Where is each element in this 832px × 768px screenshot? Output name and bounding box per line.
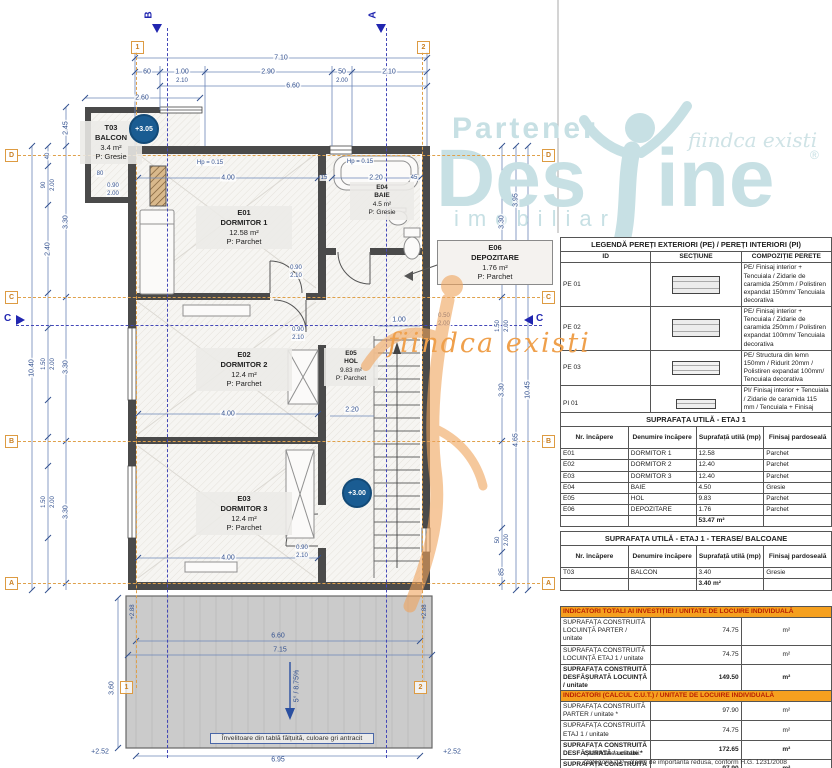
cell-nr: E04 — [561, 482, 629, 493]
grid-marker-A-right: A — [542, 577, 555, 590]
area-table-balcoane: SUPRAFAȚA UTILĂ - ETAJ 1 - TERASE/ BALCO… — [560, 531, 832, 591]
table-row: SUPRAFAȚA CONSTRUITĂ DESFĂȘURATĂ LOCUINȚ… — [561, 664, 832, 691]
dim-label: 2.40 — [45, 241, 52, 257]
table-row: E02 DORMITOR 2 12.40 Parchet — [561, 460, 832, 471]
section-arrow-C-left-icon — [16, 315, 25, 325]
dim-label: 2.10 — [291, 335, 305, 341]
dim-label: 10.40 — [29, 358, 36, 378]
table-row: PE 02 PE/ Finisaj interior + Tencuiala /… — [561, 307, 832, 351]
grid-marker-1-top: 1 — [131, 41, 144, 54]
dim-label: 7.15 — [272, 647, 288, 654]
table-row: E05 HOL 9.83 Parchet — [561, 493, 832, 504]
dim-label: +2.88 — [130, 603, 136, 620]
dim-label: 85 — [499, 567, 506, 577]
indicator-value: 74.75 — [651, 618, 741, 645]
indicator-unit: m² — [741, 645, 831, 664]
wall-section-glyph — [651, 263, 741, 307]
wall-section-pe03-icon — [672, 361, 720, 375]
col-header: Nr. încăpere — [561, 546, 629, 568]
section-arrow-A-icon — [376, 24, 386, 33]
dim-label: 2.10 — [289, 273, 303, 279]
dim-label: 3.30 — [499, 214, 506, 230]
wall-section-pe01-icon — [672, 276, 720, 294]
empty-cell — [561, 516, 629, 527]
dim-label: +2.52 — [442, 749, 462, 756]
grid-marker-2-roof: 2 — [414, 681, 427, 694]
col-header: Denumire încăpere — [628, 546, 696, 568]
col-header: Nr. încăpere — [561, 427, 629, 449]
dim-label: +2.88 — [422, 603, 428, 620]
dim-label: 45 — [410, 175, 419, 181]
dim-label: 15 — [320, 175, 329, 181]
dim-label: 1.00 — [391, 317, 407, 324]
table-title: SUPRAFAȚA UTILĂ - ETAJ 1 - TERASE/ BALCO… — [561, 532, 832, 546]
room-area: 12.58 m² — [198, 228, 290, 238]
legend-title: LEGENDĂ PEREȚI EXTERIORI (PE) / PEREȚI I… — [561, 238, 832, 252]
indicator-value: 74.75 — [651, 721, 741, 740]
grid-marker-A-left: A — [5, 577, 18, 590]
dim-label: +2.52 — [90, 749, 110, 756]
room-id: E05 — [326, 350, 376, 358]
table-row: SUPRAFAȚA CONSTRUITĂ LOCUINȚĂ ETAJ 1 / u… — [561, 645, 832, 664]
table-row: E06 DEPOZITARE 1.76 Parchet — [561, 504, 832, 515]
watermark-script: fiindca existi — [388, 328, 591, 359]
dim-label: 90 — [41, 181, 47, 190]
table-total-row: 3.40 m² — [561, 579, 832, 590]
grid-line-2 — [422, 52, 423, 688]
indicators-title: INDICATORI (CALCUL C.U.T.) / UNITATE DE … — [561, 691, 832, 702]
dim-label: 3.60 — [109, 680, 116, 696]
dim-label: 2.90 — [260, 69, 276, 76]
room-label-e04: E04 BAIE 4.5 m² P: Gresie — [350, 182, 414, 220]
room-name: BAIE — [352, 192, 412, 200]
dim-label: 1.50 — [41, 357, 47, 371]
wall-section-glyph — [651, 307, 741, 351]
grid-line-A — [18, 583, 545, 584]
dim-label: 80 — [96, 171, 105, 177]
total-area: 53.47 m² — [696, 516, 764, 527]
floor-plan-sheet: Partener Des ine fiindca existi ® imobil… — [0, 0, 832, 768]
cell-finish: Parchet — [764, 460, 832, 471]
indicator-value: 74.75 — [651, 645, 741, 664]
logo-tagline: fiindca existi — [688, 128, 817, 152]
dim-label: 2.20 — [368, 175, 384, 182]
cell-finish: Gresie — [764, 568, 832, 579]
room-area: 4.5 m² — [352, 201, 412, 209]
empty-cell — [628, 516, 696, 527]
cell-nr: T03 — [561, 568, 629, 579]
legend-id: PE 01 — [561, 263, 651, 307]
room-finish: P: Parchet — [198, 237, 290, 247]
cell-finish: Parchet — [764, 471, 832, 482]
room-finish: P: Gresie — [82, 152, 140, 162]
cell-name: DORMITOR 2 — [628, 460, 696, 471]
classification-note: Clasificarea cladirii: Categoria "D" - c… — [584, 750, 824, 768]
room-name: DORMITOR 2 — [198, 360, 290, 370]
room-area: 1.76 m² — [440, 263, 550, 273]
room-name: DORMITOR 1 — [198, 218, 290, 228]
dim-label: 4.00 — [220, 555, 236, 562]
note-line: Clasificarea cladirii: — [584, 750, 824, 759]
room-label-e05: E05 HOL 9.83 m² P: Parchet — [324, 348, 378, 386]
room-name: HOL — [326, 358, 376, 366]
section-marker-C-left: C — [4, 314, 11, 324]
cell-finish: Parchet — [764, 493, 832, 504]
cell-finish: Gresie — [764, 482, 832, 493]
dim-label: 3.30 — [63, 504, 70, 520]
dim-label: 2.60 — [134, 95, 150, 102]
level-badge-floor: +3.00 — [342, 478, 372, 508]
cell-area: 12.40 — [696, 460, 764, 471]
logo-imobiliare: imobiliare — [454, 206, 638, 232]
grid-line-B — [18, 441, 545, 442]
dim-label: 1.50 — [41, 495, 47, 509]
room-label-e06: E06 DEPOZITARE 1.76 m² P: Parchet — [437, 240, 553, 285]
dim-label: 0.90 — [295, 545, 309, 551]
dim-label: 60 — [142, 69, 152, 76]
empty-cell — [764, 579, 832, 590]
section-line-A — [386, 28, 387, 758]
col-header: Finisaj pardoseală — [764, 546, 832, 568]
cell-finish: Parchet — [764, 449, 832, 460]
cell-area: 12.40 — [696, 471, 764, 482]
dim-label: 2.10 — [175, 78, 189, 84]
cell-nr: E02 — [561, 460, 629, 471]
dim-label: 1.00 — [174, 69, 190, 76]
dim-label: 4.65 — [513, 432, 520, 448]
cell-area: 4.50 — [696, 482, 764, 493]
room-area: 3.4 m² — [82, 143, 140, 153]
dim-label: 2.00 — [50, 178, 56, 192]
indicator-unit: m² — [741, 618, 831, 645]
legend-desc: PE/ Finisaj interior + Tencuiala / Zidar… — [741, 263, 831, 307]
dim-label: 10.45 — [525, 380, 532, 400]
roof-note: Învelitoare din tablă fălțuită, culoare … — [210, 733, 374, 744]
grid-marker-B-left: B — [5, 435, 18, 448]
dim-label: 6.60 — [285, 83, 301, 90]
col-header: Finisaj pardoseală — [764, 427, 832, 449]
table-row: PE 03 PE/ Structura din lemn 150mm / Rid… — [561, 350, 832, 386]
legend-header-id: ID — [561, 252, 651, 263]
section-line-C — [16, 325, 542, 326]
grid-marker-D-right: D — [542, 149, 555, 162]
level-badge-balcony: +3.05 — [129, 114, 159, 144]
section-marker-A: A — [369, 11, 379, 18]
room-finish: P: Parchet — [198, 379, 290, 389]
cell-name: BALCON — [628, 568, 696, 579]
dim-label: 4.00 — [220, 411, 236, 418]
room-label-e02: E02 DORMITOR 2 12.4 m² P: Parchet — [196, 348, 292, 391]
cell-finish: Parchet — [764, 504, 832, 515]
table-row: E04 BAIE 4.50 Gresie — [561, 482, 832, 493]
empty-cell — [628, 579, 696, 590]
dim-label: 2.10 — [381, 69, 397, 76]
table-row: T03 BALCON 3.40 Gresie — [561, 568, 832, 579]
cell-area: 12.58 — [696, 449, 764, 460]
section-marker-C-right: C — [536, 314, 543, 324]
windows — [128, 107, 430, 552]
col-header: Suprafață utilă (mp) — [696, 546, 764, 568]
wall-section-glyph — [651, 350, 741, 386]
indicators-title: INDICATORI TOTALI AI INVESTIȚIEI / UNITA… — [561, 607, 832, 618]
cell-area: 1.76 — [696, 504, 764, 515]
indicator-label: SUPRAFAȚA CONSTRUITĂ ETAJ 1 / unitate — [561, 721, 651, 740]
room-area: 12.4 m² — [198, 514, 290, 524]
legend-desc: PE/ Structura din lemn 150mm / Ridurit 2… — [741, 350, 831, 386]
dim-label: 2.00 — [504, 533, 510, 547]
room-name: DEPOZITARE — [440, 253, 550, 263]
table-row: E03 DORMITOR 3 12.40 Parchet — [561, 471, 832, 482]
col-header: Suprafață utilă (mp) — [696, 427, 764, 449]
room-finish: P: Gresie — [352, 209, 412, 217]
total-area: 3.40 m² — [696, 579, 764, 590]
wall-section-pi01-icon — [676, 399, 716, 409]
section-line-B — [167, 28, 168, 758]
area-table-etaj1: SUPRAFAȚA UTILĂ - ETAJ 1 Nr. încăpere De… — [560, 412, 832, 527]
table-total-row: 53.47 m² — [561, 516, 832, 527]
dim-label: 4.00 — [220, 175, 236, 182]
dim-label: 2.00 — [50, 495, 56, 509]
cell-nr: E01 — [561, 449, 629, 460]
room-finish: P: Parchet — [198, 523, 290, 533]
room-area: 9.83 m² — [326, 367, 376, 375]
room-label-e03: E03 DORMITOR 3 12.4 m² P: Parchet — [196, 492, 292, 535]
section-arrow-B-icon — [152, 24, 162, 33]
legend-header-compozitie: COMPOZIȚIE PERETE — [741, 252, 831, 263]
table-row: SUPRAFAȚA CONSTRUITĂ LOCUINȚĂ PARTER / u… — [561, 618, 832, 645]
dim-label: 2.20 — [344, 407, 360, 414]
dim-label: 50 — [337, 69, 347, 76]
table-row: E01 DORMITOR 1 12.58 Parchet — [561, 449, 832, 460]
dim-label: 40 — [45, 152, 51, 161]
room-finish: P: Parchet — [326, 375, 376, 383]
table-row: SUPRAFAȚA CONSTRUITĂ ETAJ 1 / unitate 74… — [561, 721, 832, 740]
room-label-e01: E01 DORMITOR 1 12.58 m² P: Parchet — [196, 206, 292, 249]
room-id: E04 — [352, 184, 412, 192]
grid-line-C — [18, 297, 545, 298]
dim-label: 2.00 — [106, 191, 120, 197]
cell-name: DORMITOR 3 — [628, 471, 696, 482]
indicator-unit: m² — [741, 702, 831, 721]
registered-mark-icon: ® — [810, 148, 819, 162]
cell-name: DEPOZITARE — [628, 504, 696, 515]
cell-nr: E05 — [561, 493, 629, 504]
grid-marker-D-left: D — [5, 149, 18, 162]
dim-label: 3.30 — [63, 359, 70, 375]
empty-cell — [561, 579, 629, 590]
table-row: SUPRAFAȚA CONSTRUITĂ PARTER / unitate * … — [561, 702, 832, 721]
room-area: 12.4 m² — [198, 370, 290, 380]
indicator-label: SUPRAFAȚA CONSTRUITĂ LOCUINȚĂ PARTER / u… — [561, 618, 651, 645]
dim-label: Hp = 0.15 — [346, 159, 374, 165]
indicator-label: SUPRAFAȚA CONSTRUITĂ DESFĂȘURATĂ LOCUINȚ… — [561, 664, 651, 691]
indicator-label: SUPRAFAȚA CONSTRUITĂ PARTER / unitate * — [561, 702, 651, 721]
dim-label: 2.00 — [437, 321, 451, 327]
cell-name: BAIE — [628, 482, 696, 493]
dim-label: 50 — [495, 536, 501, 545]
empty-cell — [764, 516, 832, 527]
dim-label: 0.50 — [437, 313, 451, 319]
dim-label: 2.00 — [50, 357, 56, 371]
dim-label: 3.30 — [63, 214, 70, 230]
dim-label: 3.95 — [513, 192, 520, 208]
dim-label: 6.60 — [270, 633, 286, 640]
cell-nr: E06 — [561, 504, 629, 515]
legend-table: LEGENDĂ PEREȚI EXTERIORI (PE) / PEREȚI I… — [560, 237, 832, 436]
grid-marker-1-roof: 1 — [120, 681, 133, 694]
room-id: E01 — [198, 208, 290, 218]
cell-area: 9.83 — [696, 493, 764, 504]
cell-name: HOL — [628, 493, 696, 504]
grid-marker-2-top: 2 — [417, 41, 430, 54]
room-id: E06 — [440, 243, 550, 253]
dim-label: 3.30 — [499, 382, 506, 398]
legend: LEGENDĂ PEREȚI EXTERIORI (PE) / PEREȚI I… — [560, 237, 832, 436]
dim-label: 2.00 — [335, 78, 349, 84]
room-id: E03 — [198, 494, 290, 504]
dim-label: 6.95 — [270, 757, 286, 764]
wall-section-pe02-icon — [672, 319, 720, 337]
room-finish: P: Parchet — [440, 272, 550, 282]
dim-label: 2.10 — [295, 553, 309, 559]
dim-label: 7.10 — [273, 55, 289, 62]
grid-marker-C-right: C — [542, 291, 555, 304]
legend-desc: PE/ Finisaj interior + Tencuiala / Zidar… — [741, 307, 831, 351]
room-name: DORMITOR 3 — [198, 504, 290, 514]
col-header: Denumire încăpere — [628, 427, 696, 449]
dim-label: Hp = 0.15 — [196, 160, 224, 166]
cell-name: DORMITOR 1 — [628, 449, 696, 460]
masonry-pier — [150, 166, 166, 206]
indicator-unit: m² — [741, 664, 831, 691]
grid-marker-B-right: B — [542, 435, 555, 448]
legend-header-sectiune: SECȚIUNE — [651, 252, 741, 263]
indicator-unit: m² — [741, 721, 831, 740]
dim-label: 5° / 8.75% — [294, 669, 301, 703]
indicator-label: SUPRAFAȚA CONSTRUITĂ LOCUINȚĂ ETAJ 1 / u… — [561, 645, 651, 664]
note-line: Categoria "D" - cladiri de importanta re… — [584, 759, 824, 768]
table-title: SUPRAFAȚA UTILĂ - ETAJ 1 — [561, 413, 832, 427]
dim-label: 0.90 — [289, 265, 303, 271]
room-id: E02 — [198, 350, 290, 360]
grid-marker-C-left: C — [5, 291, 18, 304]
table-row: PE 01 PE/ Finisaj interior + Tencuiala /… — [561, 263, 832, 307]
cell-area: 3.40 — [696, 568, 764, 579]
dim-label: 0.90 — [106, 183, 120, 189]
cell-nr: E03 — [561, 471, 629, 482]
staircase — [374, 336, 420, 578]
dim-label: 0.90 — [291, 327, 305, 333]
section-arrow-C-right-icon — [524, 315, 533, 325]
indicator-value: 149.50 — [651, 664, 741, 691]
indicator-value: 97.90 — [651, 702, 741, 721]
dim-label: 2.45 — [63, 120, 70, 136]
section-marker-B: B — [145, 11, 155, 18]
